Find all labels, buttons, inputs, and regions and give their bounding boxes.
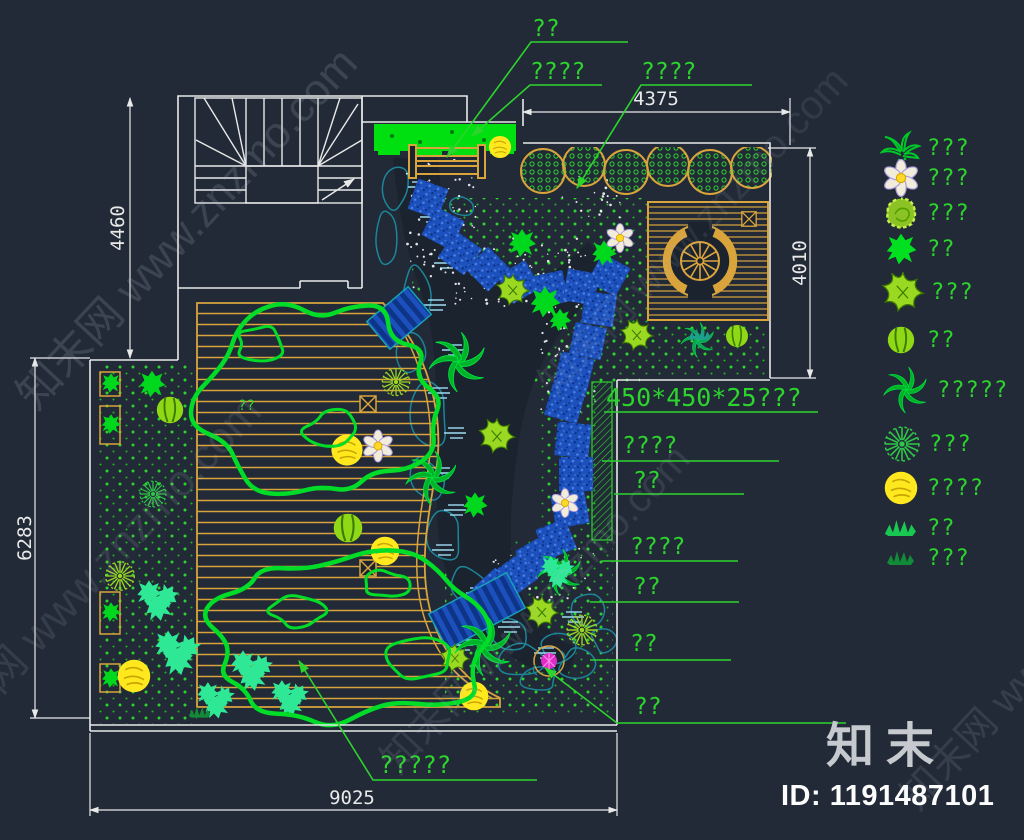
legend-item: ???	[880, 424, 972, 464]
legend-item: ????	[880, 468, 984, 508]
dim-left-lower: 6283	[14, 515, 36, 561]
dark-grass-icon	[880, 541, 922, 575]
legend-item-label: ??	[927, 237, 956, 262]
legend-item-label: ?????	[937, 378, 1008, 403]
dim-top: 4375	[633, 88, 679, 110]
dim-left-upper: 4460	[107, 205, 129, 251]
drawing-id: ID: 1191487101	[781, 780, 994, 813]
callout-right-4: ??	[630, 631, 658, 657]
legend-item-label: ??	[927, 328, 956, 353]
dandelion-tree-icon	[880, 424, 924, 464]
legend-item-label: ??	[927, 516, 956, 541]
callout-right-5: ??	[634, 694, 662, 720]
legend-item-label: ???	[927, 166, 970, 191]
legend-item: ??	[880, 229, 956, 269]
legend-item-label: ???	[931, 280, 974, 305]
white-flower-icon	[880, 159, 922, 197]
dim-bottom: 9025	[329, 787, 375, 809]
cad-plan-preview: 4460 6283 4375 4010 9025 ?? ???? ???? 45…	[0, 0, 1024, 840]
callout-paving-spec: 450*450*25???	[606, 383, 802, 412]
legend-item-label: ???	[927, 136, 970, 161]
plant-legend: ??? ??? ??? ?? ??? ?? ????? ??? ???? ?? …	[880, 0, 1024, 600]
dim-right: 4010	[789, 240, 811, 286]
yellow-tree-icon	[880, 469, 922, 507]
legend-item: ??	[880, 320, 956, 360]
legend-item: ???	[880, 158, 970, 198]
legend-item: ?????	[880, 370, 1008, 410]
legend-item: ???	[880, 538, 970, 578]
legend-item-label: ???	[927, 201, 970, 226]
callout-right-3: ??	[633, 574, 661, 600]
large-leaf-plant-icon	[880, 366, 932, 414]
legend-item: ???	[880, 272, 974, 312]
ball-plant-icon	[880, 321, 922, 359]
small-shrub-icon	[880, 230, 922, 268]
callout-bench: ??	[532, 16, 560, 42]
star-lily-icon	[880, 271, 926, 313]
znzmo-logo: 知末	[826, 706, 946, 776]
callout-right-2: ????	[630, 534, 685, 560]
legend-item-label: ????	[927, 476, 984, 501]
callout-shrub-row: ????	[641, 59, 696, 85]
legend-item-label: ???	[927, 546, 970, 571]
round-shrub-icon	[880, 194, 922, 232]
callout-hedge: ????	[530, 59, 585, 85]
legend-item: ???	[880, 193, 970, 233]
legend-item-label: ???	[929, 432, 972, 457]
